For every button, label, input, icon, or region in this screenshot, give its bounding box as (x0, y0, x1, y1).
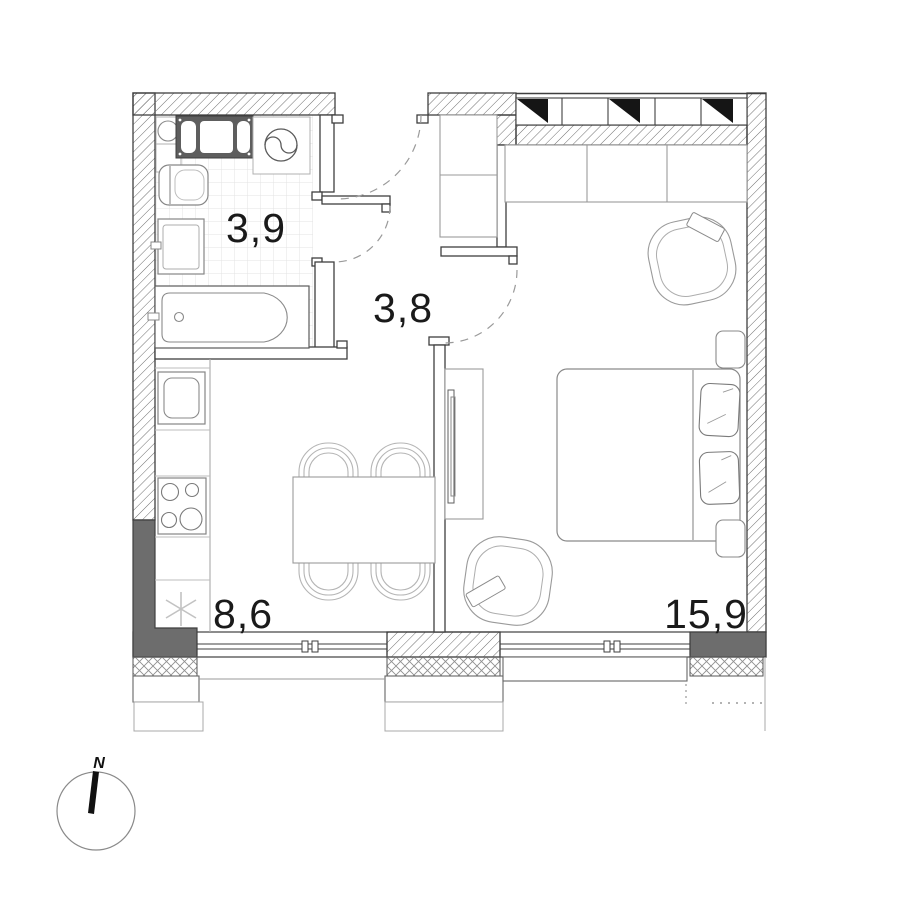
entrance-jamb-right (417, 115, 428, 123)
toilet (159, 165, 208, 205)
balcony-block (385, 702, 503, 731)
entrance-jamb-left (332, 115, 343, 123)
pier-crosshatch-left (133, 657, 197, 676)
wall-top-step (496, 115, 516, 145)
towel-radiator (176, 116, 253, 158)
window-mullion (302, 641, 308, 652)
wall-top-entrance-pier (428, 93, 516, 115)
bed (557, 369, 740, 541)
bathroom-bottom-wall (155, 347, 347, 359)
tub-tap (148, 313, 159, 320)
bathroom-bottom-wall-tick (337, 341, 347, 348)
bottom-wall-pier (387, 632, 500, 657)
living-room-area-label: 15,9 (664, 591, 748, 637)
tv-unit (445, 369, 483, 519)
wall-top-bathroom (133, 93, 335, 115)
top-window-niche (516, 94, 766, 126)
window-mullion (604, 641, 610, 652)
pier-crosshatch-center (387, 657, 500, 676)
wall-left (133, 93, 155, 520)
dining-table (293, 477, 435, 563)
wardrobe-top (505, 145, 747, 202)
bathroom-wall-upper (320, 115, 334, 192)
nightstand-top (716, 331, 745, 368)
basin-tap (151, 242, 161, 249)
balcony-slab-right (503, 657, 687, 681)
balcony-block (134, 702, 203, 731)
hall-living-wall-horizontal (441, 247, 517, 256)
floor-plan-page: 3,9 3,8 8,6 15,9 N (0, 0, 900, 900)
window-mullion (614, 641, 620, 652)
pier-crosshatch-right (690, 657, 763, 676)
washing-machine (253, 117, 310, 174)
balcony-block (133, 676, 199, 702)
wardrobe-hallway (440, 115, 497, 237)
pillow (699, 451, 740, 504)
balcony-block (385, 676, 503, 702)
kitchen-living-partition (434, 345, 445, 632)
hallway-stub-step (382, 204, 390, 212)
bathtub (148, 286, 309, 348)
hall-living-wall-step (509, 256, 517, 264)
floor-plan-drawing: 3,9 3,8 8,6 15,9 N (0, 0, 900, 900)
hallway-area-label: 3,8 (373, 285, 433, 331)
window-mullion (312, 641, 318, 652)
kitchen-sink (158, 372, 205, 424)
partition-top-jamb (429, 337, 449, 345)
compass-north-label: N (93, 755, 105, 772)
bathroom-wall-lower (315, 262, 334, 350)
wall-window-niche-band (516, 125, 747, 145)
wall-right (747, 93, 766, 632)
pillow (699, 383, 741, 437)
stove (158, 478, 206, 534)
nightstand-bottom (716, 520, 745, 557)
bathroom-door-jamb-top (312, 192, 322, 200)
bathroom-area-label: 3,9 (226, 205, 286, 251)
kitchen-area-label: 8,6 (213, 591, 273, 637)
washbasin (151, 219, 204, 274)
